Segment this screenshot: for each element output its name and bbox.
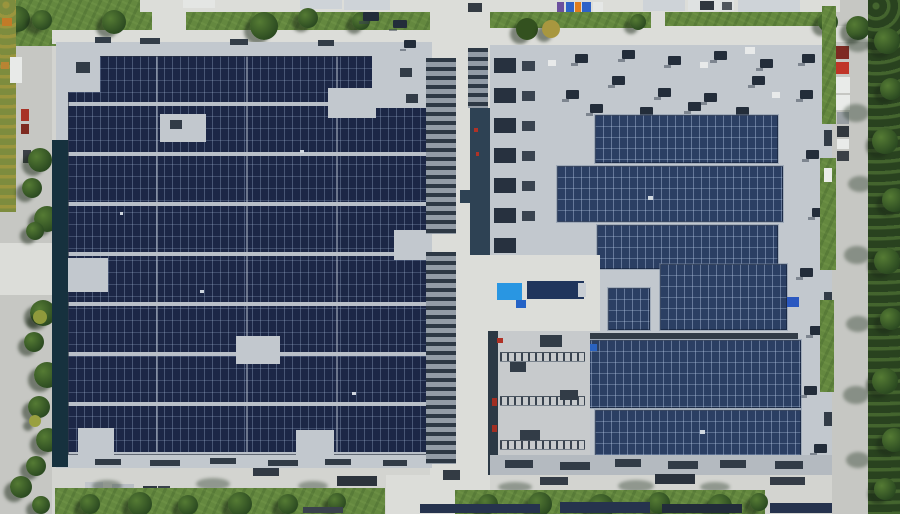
tree	[22, 178, 42, 198]
red-unit	[497, 338, 503, 343]
truck	[655, 474, 695, 484]
tree	[80, 494, 100, 514]
solar-carport	[420, 504, 540, 513]
navy-trailer	[527, 281, 584, 299]
skylight	[494, 88, 516, 103]
roof-dash	[95, 37, 111, 43]
blue-container	[497, 283, 522, 300]
panel-reflection	[120, 212, 123, 215]
hvac-unit	[622, 50, 635, 59]
panel-reflection	[700, 430, 705, 434]
top-yard	[140, 0, 840, 12]
dock-dash	[268, 460, 298, 466]
tree	[128, 492, 152, 514]
solar-band	[557, 166, 783, 222]
panel-notch	[78, 428, 114, 455]
container-purple	[557, 2, 564, 12]
container-orange	[575, 2, 581, 12]
hvac-unit	[760, 59, 773, 68]
hvac-unit	[814, 444, 827, 453]
solar-carport	[560, 502, 650, 513]
tree	[880, 78, 900, 100]
tree-autumn	[29, 415, 41, 427]
left-connector-path	[0, 243, 56, 295]
panel-notch	[236, 336, 280, 364]
hvac-unit	[404, 40, 416, 48]
container-white	[593, 2, 603, 12]
sign-white	[824, 168, 832, 182]
hvac-unit	[800, 268, 813, 277]
top-building	[738, 0, 800, 12]
roof-dash	[230, 39, 248, 45]
equipment-row	[578, 333, 798, 339]
pipe-row	[500, 440, 585, 450]
top-building	[643, 0, 685, 11]
hvac-unit	[800, 90, 813, 99]
roof-box-white	[700, 62, 708, 68]
dock-dash	[150, 460, 180, 466]
hvac-unit	[806, 150, 819, 159]
tree	[28, 148, 52, 172]
solar-band	[597, 225, 778, 269]
hvac-unit	[590, 104, 603, 113]
hvac-unit	[612, 76, 625, 85]
panel-notch	[394, 230, 428, 260]
solar-band	[595, 115, 778, 163]
skylight	[494, 148, 516, 163]
tree-shadow	[846, 452, 870, 468]
panel-notch	[68, 258, 108, 292]
dock-dash	[325, 459, 351, 465]
dock-dash	[505, 460, 533, 468]
tree	[874, 28, 900, 54]
hvac-unit	[658, 88, 671, 97]
tree	[178, 495, 198, 514]
container-blue	[582, 2, 591, 12]
skylight	[522, 91, 535, 101]
truck	[770, 477, 805, 485]
equipment	[540, 335, 562, 347]
roof-box-white	[772, 92, 780, 98]
truck	[722, 2, 732, 10]
tree	[872, 368, 898, 394]
right-building-west-wall	[470, 108, 490, 258]
panel-notch	[372, 56, 428, 108]
tree	[32, 10, 52, 30]
roof-vent	[76, 62, 90, 73]
dock-dash	[383, 460, 407, 466]
dock-dash	[824, 130, 832, 146]
roof-box-white	[745, 47, 755, 54]
tree	[872, 128, 898, 154]
skylight	[522, 181, 535, 191]
tree	[874, 248, 900, 274]
dock-dash	[775, 461, 803, 469]
skylight	[494, 238, 516, 253]
hvac-unit	[802, 54, 815, 63]
bush-orange	[1, 62, 9, 69]
tree-autumn	[542, 20, 560, 38]
tree	[516, 18, 538, 40]
right-grass	[820, 300, 834, 392]
hvac-unit	[704, 93, 717, 102]
tree-shadow	[846, 36, 870, 52]
skylight	[522, 121, 535, 131]
hvac-unit	[804, 386, 817, 395]
skylight	[494, 58, 516, 73]
panel-reflection	[648, 196, 653, 200]
equipment	[520, 430, 540, 440]
hvac-unit	[688, 102, 701, 111]
left-building-west-wall	[52, 140, 68, 467]
dock-dash	[668, 461, 698, 469]
dock-dash	[720, 460, 746, 468]
apron-right	[488, 28, 832, 46]
tree	[880, 308, 900, 330]
tree	[882, 428, 900, 452]
tree-shadow	[846, 316, 870, 332]
car	[837, 126, 849, 137]
tree	[24, 332, 44, 352]
car	[21, 124, 29, 134]
tree	[630, 14, 646, 30]
hvac-unit	[714, 51, 727, 60]
truck	[337, 476, 377, 486]
tree	[298, 8, 318, 28]
left-pipes-lower	[426, 252, 456, 464]
wall-mark-red	[476, 152, 479, 156]
tree	[250, 12, 278, 40]
hvac-unit	[363, 12, 379, 21]
trailer-cab	[578, 283, 586, 297]
right-grass	[822, 6, 836, 124]
car	[21, 109, 29, 121]
panel-notch	[296, 430, 334, 455]
tree	[32, 496, 50, 514]
equipment	[510, 362, 526, 372]
panel-notch	[160, 114, 206, 142]
van	[10, 57, 22, 83]
solar-band	[575, 340, 801, 408]
red-unit	[492, 425, 497, 432]
roof-dash	[318, 40, 334, 46]
solar-carport	[662, 504, 742, 513]
hvac-unit	[668, 56, 681, 65]
red-unit	[492, 398, 497, 406]
tree	[26, 456, 46, 476]
tree	[278, 494, 298, 514]
tree	[874, 478, 896, 500]
solar-band	[608, 288, 650, 330]
left-pipes-upper	[426, 58, 456, 234]
tree	[102, 10, 126, 34]
car	[468, 3, 482, 12]
dock-dash	[824, 412, 832, 426]
equipment	[560, 390, 578, 400]
roof-vent	[170, 120, 182, 129]
truck	[443, 470, 460, 480]
container-blue	[566, 2, 574, 12]
top-building	[183, 0, 215, 8]
car	[836, 62, 849, 74]
aerial-photo-industrial-solar-complex	[0, 0, 900, 514]
tree	[750, 493, 768, 511]
car	[836, 77, 850, 93]
car	[837, 139, 849, 149]
roof-vent	[406, 94, 418, 103]
tree-shadow	[844, 246, 870, 264]
truck	[540, 477, 568, 485]
top-building	[344, 0, 390, 10]
hvac-unit	[575, 54, 588, 63]
skylight	[522, 211, 535, 221]
car	[837, 151, 849, 161]
skylight	[494, 118, 516, 133]
panel-reflection	[200, 290, 204, 293]
roof-vent	[400, 68, 412, 77]
skylight	[494, 178, 516, 193]
skylight	[494, 208, 516, 223]
dock-dash	[615, 459, 641, 467]
blue-pallet	[516, 300, 526, 308]
tree	[228, 492, 252, 514]
tree	[882, 188, 900, 212]
dock-dash	[560, 462, 590, 470]
tree-autumn	[33, 310, 47, 324]
bush-orange	[2, 18, 12, 26]
tree-shadow	[843, 386, 869, 404]
hvac-unit	[752, 76, 765, 85]
left-veg	[0, 0, 16, 212]
tree	[10, 476, 32, 498]
hvac-unit	[566, 90, 579, 99]
hvac-unit	[393, 20, 407, 28]
wall-foot	[460, 190, 488, 203]
tree	[26, 222, 44, 240]
solar-carport	[770, 503, 832, 513]
dock-dash	[210, 458, 236, 464]
truck	[253, 468, 279, 476]
panel-reflection	[352, 392, 356, 395]
truck	[700, 1, 714, 10]
solar-carport	[303, 507, 343, 513]
skylight	[522, 61, 535, 71]
tree-shadow	[843, 104, 869, 122]
pipe-row	[500, 352, 585, 362]
wall-mark-red	[474, 128, 478, 132]
skylight	[522, 151, 535, 161]
panel-reflection	[300, 150, 304, 153]
roof-dash	[140, 38, 160, 44]
blue-flag	[787, 297, 799, 307]
solar-band	[660, 264, 787, 330]
dock-dash	[95, 459, 121, 465]
roof-box-white	[548, 60, 556, 66]
panel-notch	[328, 88, 376, 118]
right-corridor-pipes	[468, 48, 488, 108]
